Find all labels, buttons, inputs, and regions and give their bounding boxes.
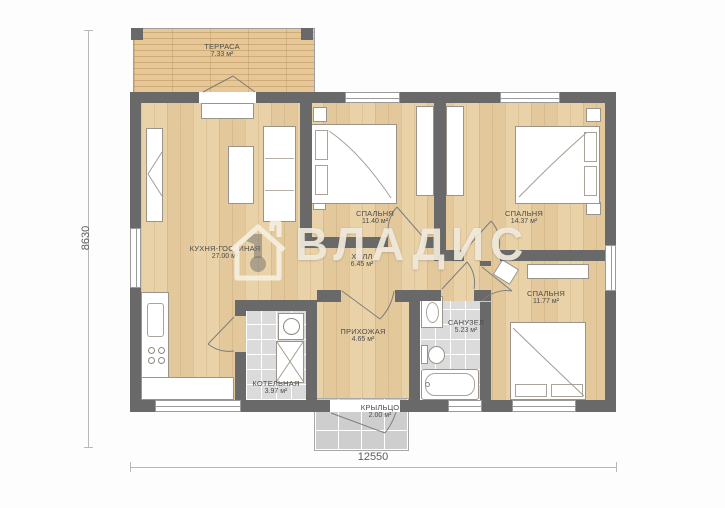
wardrobe-bedroom-1 <box>416 106 434 196</box>
nightstand <box>586 108 601 122</box>
stove-burner <box>158 347 165 354</box>
room-label-bedroom-3: СПАЛЬНЯ 11.77 м² <box>506 289 586 307</box>
wall-segment <box>500 250 605 261</box>
toilet-bowl <box>428 346 445 364</box>
room-area: 2.00 м² <box>340 412 420 421</box>
pillow <box>551 384 583 397</box>
bed-bedroom-3 <box>510 322 586 400</box>
wall-segment <box>434 103 446 250</box>
room-name: КРЫЛЬЦО <box>340 403 420 412</box>
pillow <box>584 132 597 162</box>
room-label-entry: ПРИХОЖАЯ 4.65 м² <box>323 327 403 345</box>
boiler-cabinet <box>276 341 304 383</box>
wall-segment <box>434 250 464 261</box>
room-label-terrace: ТЕРРАСА 7.33 м² <box>177 42 267 60</box>
pillow <box>315 165 328 195</box>
wall-segment <box>409 290 420 400</box>
terrace-door-opening <box>199 92 256 103</box>
room-area: 14.37 м² <box>484 218 564 227</box>
terrace-post <box>301 28 313 40</box>
window-bedroom-2 <box>500 92 560 103</box>
dimension-tick <box>130 462 131 472</box>
room-area: 11.40 м² <box>335 218 415 227</box>
wall-segment <box>300 103 312 237</box>
washer-drum <box>283 318 300 335</box>
wall-segment <box>474 290 491 301</box>
room-area: 7.33 м² <box>177 51 267 60</box>
stove-burner <box>158 357 165 364</box>
dimension-tick <box>616 462 617 472</box>
kitchen-counter-bottom <box>141 377 234 400</box>
room-label-bedroom-1: СПАЛЬНЯ 11.40 м² <box>335 209 415 227</box>
floor-plan-canvas: ТЕРРАСА 7.33 м² КУХНЯ-ГОСТИНАЯ 27.00 м² … <box>0 0 725 508</box>
room-area: 6.45 м² <box>327 261 397 270</box>
wall-segment <box>480 302 491 400</box>
pillow <box>515 384 547 397</box>
sofa-cushion-line <box>265 158 294 159</box>
dimension-label-height: 8630 <box>80 218 92 258</box>
stove-burner <box>148 357 155 364</box>
room-name: КУХНЯ-ГОСТИНАЯ <box>170 244 280 253</box>
window-bathroom <box>448 400 482 412</box>
wall-segment <box>480 261 491 266</box>
room-label-bathroom: САНУЗЕЛ 5.23 м² <box>430 318 502 336</box>
wall-segment <box>300 237 388 248</box>
wall-segment <box>235 300 317 311</box>
room-name: ПРИХОЖАЯ <box>323 327 403 336</box>
bed-bedroom-2 <box>515 126 600 204</box>
nightstand <box>313 107 327 122</box>
desk <box>527 264 589 279</box>
room-name: СПАЛЬНЯ <box>506 289 586 298</box>
kitchen-sink <box>147 303 164 337</box>
dimension-label-width: 12550 <box>340 451 406 463</box>
room-name: ХОЛЛ <box>327 252 397 261</box>
room-name: ТЕРРАСА <box>177 42 267 51</box>
terrace-deck <box>133 28 315 94</box>
toilet-tank <box>421 345 428 364</box>
stove-burner <box>148 347 155 354</box>
pillow <box>315 130 328 160</box>
bathtub <box>421 369 479 400</box>
sofa <box>263 126 296 222</box>
sofa-cushion-line <box>265 190 294 191</box>
room-name: КОТЕЛЬНАЯ <box>236 379 316 388</box>
wardrobe-bedroom-2 <box>446 106 464 196</box>
washing-machine <box>278 313 304 340</box>
room-label-kitchen-living: КУХНЯ-ГОСТИНАЯ 27.00 м² <box>170 244 280 262</box>
terrace-door-slab <box>201 103 254 119</box>
wall-segment <box>395 290 409 302</box>
room-name: СПАЛЬНЯ <box>484 209 564 218</box>
wall-segment <box>235 300 246 316</box>
dining-table <box>228 146 254 204</box>
kitchen-counter-left <box>141 292 169 378</box>
dimension-tick <box>84 30 93 31</box>
room-label-hall: ХОЛЛ 6.45 м² <box>327 252 397 270</box>
bed-bedroom-1 <box>311 124 397 204</box>
window-bedroom-1 <box>345 92 400 103</box>
pillow <box>584 166 597 196</box>
bathtub-basin <box>425 373 475 396</box>
room-area: 4.65 м² <box>323 336 403 345</box>
room-label-boiler: КОТЕЛЬНАЯ 3.97 м² <box>236 379 316 397</box>
window-bedroom-3 <box>512 400 576 412</box>
room-area: 3.97 м² <box>236 388 316 397</box>
room-name: САНУЗЕЛ <box>430 318 502 327</box>
wall-segment <box>424 237 434 248</box>
room-area: 11.77 м² <box>506 298 586 307</box>
room-area: 27.00 м² <box>170 253 280 262</box>
room-area: 5.23 м² <box>430 327 502 336</box>
window-kitchen <box>155 400 241 412</box>
room-name: СПАЛЬНЯ <box>335 209 415 218</box>
wall-segment <box>317 290 341 302</box>
dimension-tick <box>84 447 93 448</box>
terrace-post <box>131 28 143 40</box>
window-right <box>605 245 616 291</box>
wardrobe-living <box>146 128 163 222</box>
dimension-line-horizontal <box>130 467 617 468</box>
window-living <box>130 228 141 288</box>
room-label-bedroom-2: СПАЛЬНЯ 14.37 м² <box>484 209 564 227</box>
room-label-porch: КРЫЛЬЦО 2.00 м² <box>340 403 420 421</box>
bathtub-faucet <box>425 382 430 387</box>
